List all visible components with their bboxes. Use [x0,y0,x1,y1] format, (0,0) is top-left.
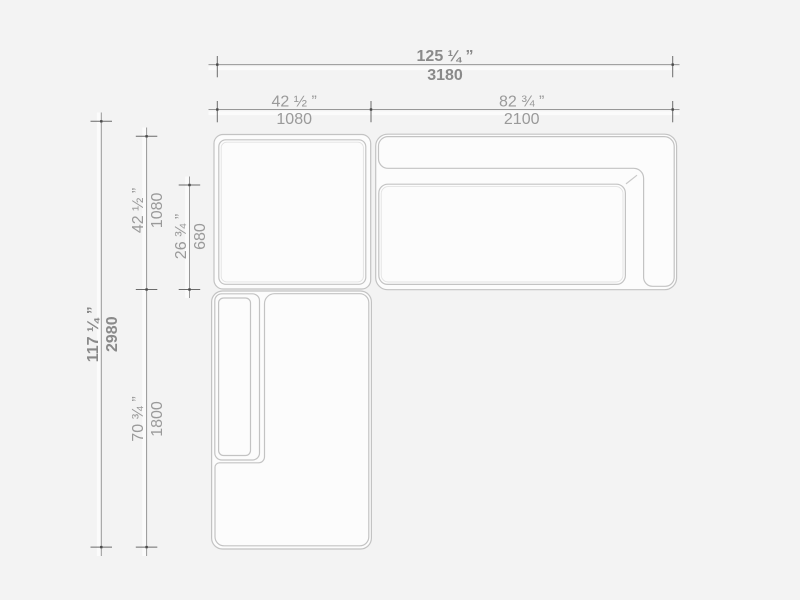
svg-text:1080: 1080 [149,193,166,229]
svg-text:125 ¼ ”: 125 ¼ ” [417,48,474,65]
svg-text:42 ½ ”: 42 ½ ” [130,188,147,233]
svg-text:3180: 3180 [427,67,463,84]
svg-text:680: 680 [192,223,209,250]
svg-text:1800: 1800 [149,401,166,437]
svg-text:1080: 1080 [276,111,312,128]
svg-text:26 ¾ ”: 26 ¾ ” [173,214,190,259]
svg-text:2100: 2100 [504,111,540,128]
svg-text:2980: 2980 [104,316,121,352]
svg-text:70 ¾ ”: 70 ¾ ” [130,396,147,441]
svg-text:82 ¾ ”: 82 ¾ ” [499,93,544,110]
svg-text:117 ¼ ”: 117 ¼ ” [85,306,102,362]
svg-text:42 ½ ”: 42 ½ ” [272,93,317,110]
